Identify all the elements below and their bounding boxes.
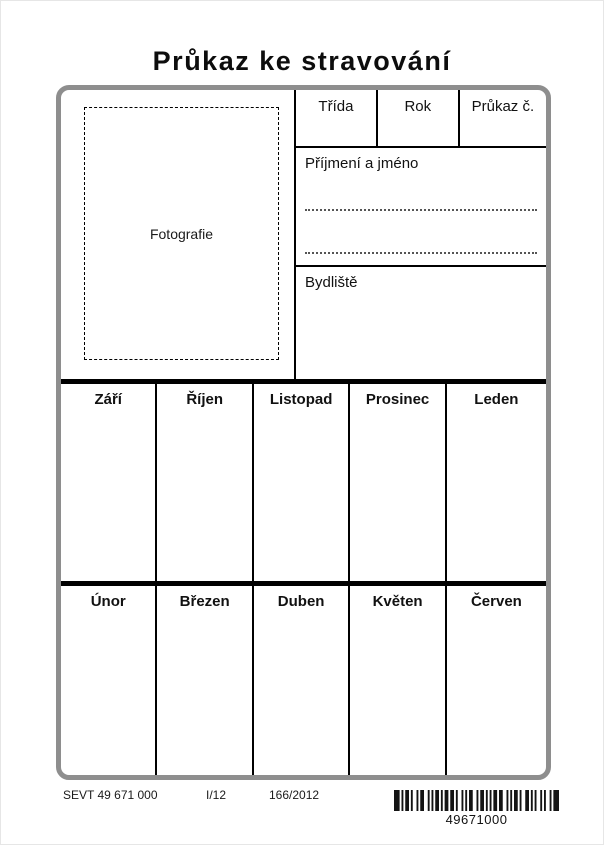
month-label: Březen: [180, 593, 230, 610]
month-grid-row-2: Únor Březen Duben Květen Červen: [61, 586, 546, 775]
residence-section-label: Bydliště: [305, 274, 358, 291]
month-cell-rijen[interactable]: Říjen: [157, 384, 253, 581]
footer-form-code: SEVT 49 671 000: [63, 788, 158, 802]
field-rok[interactable]: Rok: [378, 90, 460, 146]
month-label: Říjen: [186, 391, 223, 408]
month-cell-kveten[interactable]: Květen: [350, 586, 446, 775]
name-section: Příjmení a jméno: [296, 148, 546, 267]
month-label: Listopad: [270, 391, 333, 408]
month-label: Duben: [278, 593, 325, 610]
month-cell-duben[interactable]: Duben: [254, 586, 350, 775]
photo-placeholder[interactable]: Fotografie: [84, 107, 279, 360]
month-label: Červen: [471, 593, 522, 610]
info-panel: Třída Rok Průkaz č. Příjmení a jméno Byd…: [296, 90, 546, 379]
month-cell-cerven[interactable]: Červen: [447, 586, 546, 775]
form-page: Průkaz ke stravování Fotografie Třída Ro…: [0, 0, 604, 845]
field-trida[interactable]: Třída: [296, 90, 378, 146]
meal-card: Fotografie Třída Rok Průkaz č. Příj: [56, 85, 551, 780]
field-prukaz-c-label: Průkaz č.: [472, 98, 535, 115]
field-prukaz-c[interactable]: Průkaz č.: [460, 90, 546, 146]
month-label: Září: [94, 391, 122, 408]
name-fill-line-2[interactable]: [305, 252, 537, 254]
footer-edition: I/12: [206, 788, 226, 802]
barcode-block: 49671000: [394, 790, 559, 827]
month-cell-leden[interactable]: Leden: [447, 384, 546, 581]
month-label: Květen: [373, 593, 423, 610]
month-grid-row-1: Září Říjen Listopad Prosinec Leden: [61, 384, 546, 581]
field-rok-label: Rok: [404, 98, 431, 115]
month-cell-brezen[interactable]: Březen: [157, 586, 253, 775]
name-fill-line-1[interactable]: [305, 209, 537, 211]
photo-panel: Fotografie: [61, 90, 296, 379]
month-label: Leden: [474, 391, 518, 408]
month-cell-unor[interactable]: Únor: [61, 586, 157, 775]
footer-order-number: 166/2012: [269, 788, 319, 802]
info-header-row: Třída Rok Průkaz č.: [296, 90, 546, 148]
photo-placeholder-label: Fotografie: [150, 226, 213, 242]
name-section-label: Příjmení a jméno: [305, 155, 418, 172]
month-cell-zari[interactable]: Září: [61, 384, 157, 581]
field-trida-label: Třída: [318, 98, 353, 115]
month-cell-prosinec[interactable]: Prosinec: [350, 384, 446, 581]
card-top-section: Fotografie Třída Rok Průkaz č. Příj: [61, 90, 546, 379]
residence-section[interactable]: Bydliště: [296, 267, 546, 379]
form-title: Průkaz ke stravování: [1, 46, 603, 77]
month-label: Prosinec: [366, 391, 429, 408]
month-label: Únor: [91, 593, 126, 610]
month-cell-listopad[interactable]: Listopad: [254, 384, 350, 581]
barcode: [394, 790, 559, 811]
barcode-number: 49671000: [394, 812, 559, 827]
